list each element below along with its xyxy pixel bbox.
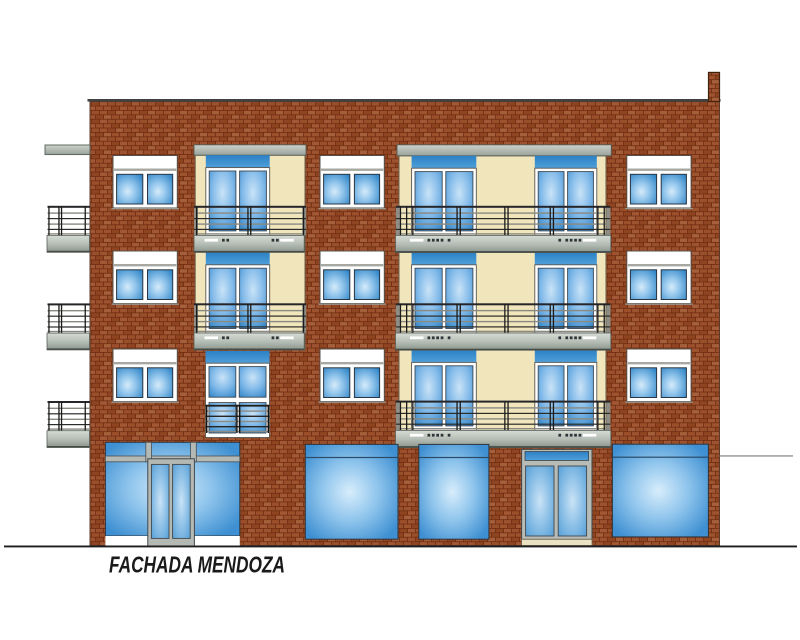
svg-text:FACHADA MENDOZA: FACHADA MENDOZA bbox=[109, 552, 285, 578]
